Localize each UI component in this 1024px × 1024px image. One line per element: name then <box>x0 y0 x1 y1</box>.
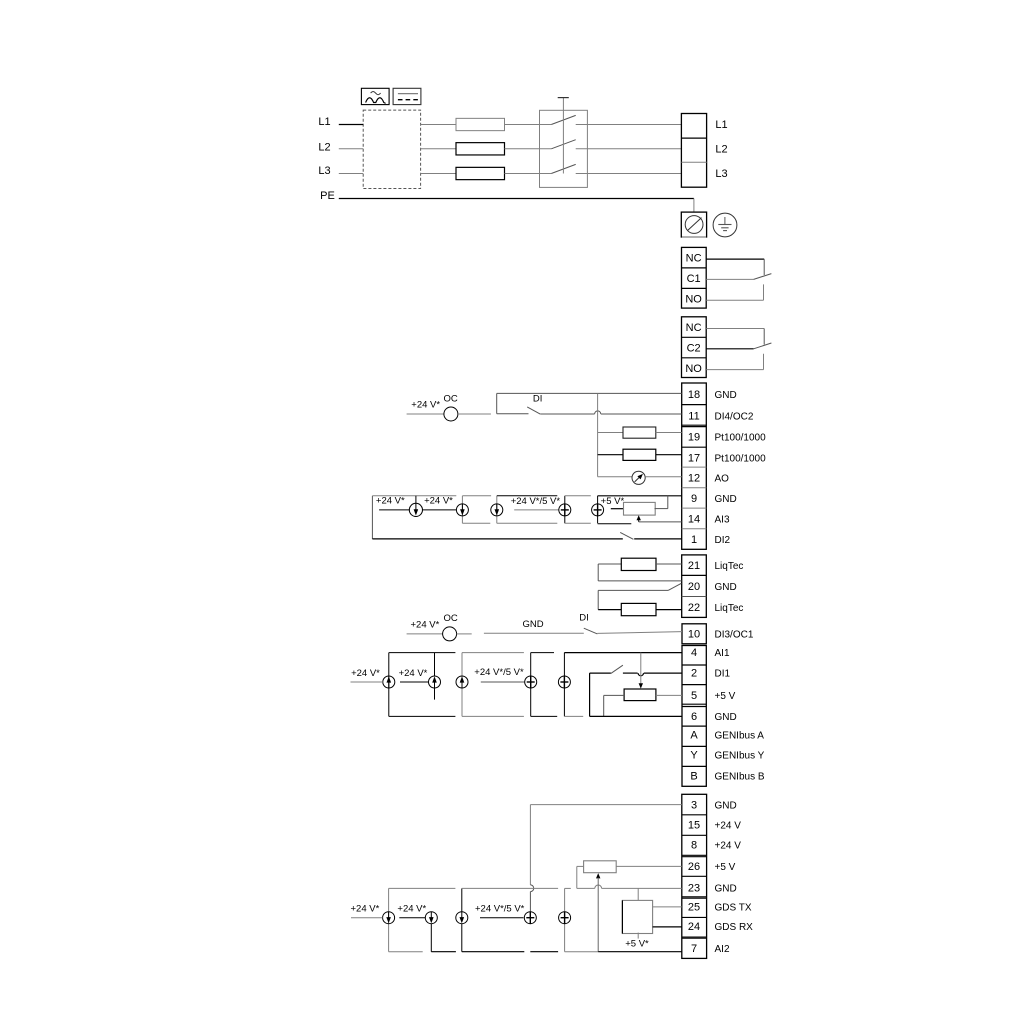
svg-text:AI2: AI2 <box>715 944 730 955</box>
svg-text:GND: GND <box>715 883 737 894</box>
svg-text:Y: Y <box>690 750 698 762</box>
svg-text:PE: PE <box>320 190 335 202</box>
svg-text:9: 9 <box>691 493 697 505</box>
svg-text:11: 11 <box>688 410 699 422</box>
svg-text:22: 22 <box>688 602 700 614</box>
svg-text:DI: DI <box>533 394 543 405</box>
svg-text:+24 V*: +24 V* <box>376 496 405 507</box>
svg-text:6: 6 <box>691 711 697 723</box>
svg-text:12: 12 <box>688 473 700 485</box>
svg-text:DI1: DI1 <box>715 669 731 680</box>
svg-text:LiqTec: LiqTec <box>715 603 744 614</box>
svg-text:+24 V: +24 V <box>715 841 742 852</box>
svg-text:GND: GND <box>715 390 737 401</box>
svg-text:+24 V*: +24 V* <box>424 496 453 507</box>
svg-text:+24 V*: +24 V* <box>399 668 428 679</box>
svg-text:+24 V*/5 V*: +24 V*/5 V* <box>474 667 524 678</box>
svg-text:AI1: AI1 <box>715 648 730 659</box>
svg-text:GDS TX: GDS TX <box>715 903 752 914</box>
svg-text:A: A <box>690 730 698 742</box>
svg-text:24: 24 <box>688 921 700 933</box>
svg-text:GND: GND <box>522 619 543 630</box>
svg-text:25: 25 <box>688 902 700 914</box>
svg-text:20: 20 <box>688 581 700 593</box>
svg-text:NC: NC <box>686 322 702 334</box>
svg-text:DI3/OC1: DI3/OC1 <box>715 630 754 641</box>
svg-text:Pt100/1000: Pt100/1000 <box>715 453 767 464</box>
svg-text:C1: C1 <box>687 273 701 285</box>
svg-text:GND: GND <box>715 800 737 811</box>
svg-text:LiqTec: LiqTec <box>715 561 744 572</box>
svg-text:OC: OC <box>443 393 457 404</box>
svg-text:B: B <box>690 771 697 783</box>
svg-text:GND: GND <box>715 582 737 593</box>
svg-text:GND: GND <box>715 494 737 505</box>
svg-text:18: 18 <box>688 389 700 401</box>
svg-text:GENIbus B: GENIbus B <box>715 772 765 783</box>
svg-text:+5 V*: +5 V* <box>601 496 625 507</box>
svg-text:DI: DI <box>579 613 589 624</box>
svg-text:L1: L1 <box>318 116 330 128</box>
svg-text:L3: L3 <box>715 168 727 180</box>
svg-text:+24 V*/5 V*: +24 V*/5 V* <box>475 903 525 914</box>
svg-text:+24 V*: +24 V* <box>411 400 440 411</box>
svg-text:1: 1 <box>691 534 697 546</box>
svg-text:L1: L1 <box>715 119 727 131</box>
svg-text:+5 V*: +5 V* <box>625 938 649 949</box>
svg-text:+24 V*/5 V*: +24 V*/5 V* <box>511 496 561 507</box>
svg-text:3: 3 <box>691 799 697 811</box>
svg-text:Pt100/1000: Pt100/1000 <box>715 433 767 444</box>
svg-text:GENIbus A: GENIbus A <box>715 731 765 742</box>
svg-text:8: 8 <box>691 840 697 852</box>
svg-text:DI2: DI2 <box>715 535 731 546</box>
svg-text:DI4/OC2: DI4/OC2 <box>715 411 754 422</box>
svg-text:+24 V*: +24 V* <box>351 903 380 914</box>
svg-text:+24 V*: +24 V* <box>397 903 426 914</box>
svg-text:+24 V*: +24 V* <box>351 668 380 679</box>
svg-text:+5 V: +5 V <box>715 691 736 702</box>
svg-text:10: 10 <box>688 629 700 641</box>
svg-text:NO: NO <box>685 293 702 305</box>
svg-text:21: 21 <box>688 560 700 572</box>
svg-text:+24 V*: +24 V* <box>411 620 440 631</box>
svg-text:NC: NC <box>686 252 702 264</box>
svg-text:+24 V: +24 V <box>715 821 742 832</box>
svg-text:AO: AO <box>715 474 730 485</box>
svg-text:17: 17 <box>688 452 700 464</box>
svg-text:L2: L2 <box>715 144 727 156</box>
svg-text:+5 V: +5 V <box>715 862 736 873</box>
svg-text:5: 5 <box>691 690 697 702</box>
svg-text:C2: C2 <box>687 342 701 354</box>
svg-text:L2: L2 <box>318 141 330 153</box>
svg-text:15: 15 <box>688 820 700 832</box>
svg-text:OC: OC <box>443 613 457 624</box>
svg-text:14: 14 <box>688 514 700 526</box>
svg-text:4: 4 <box>691 647 697 659</box>
svg-text:GENIbus Y: GENIbus Y <box>715 751 765 762</box>
svg-text:GND: GND <box>715 712 737 723</box>
svg-text:23: 23 <box>688 882 700 894</box>
svg-text:GDS RX: GDS RX <box>715 922 754 933</box>
svg-text:AI3: AI3 <box>715 515 730 526</box>
svg-text:L3: L3 <box>318 165 330 177</box>
svg-text:26: 26 <box>688 861 700 873</box>
svg-text:NO: NO <box>685 363 702 375</box>
svg-text:7: 7 <box>691 943 697 955</box>
svg-text:19: 19 <box>688 432 700 444</box>
svg-text:2: 2 <box>691 668 697 680</box>
